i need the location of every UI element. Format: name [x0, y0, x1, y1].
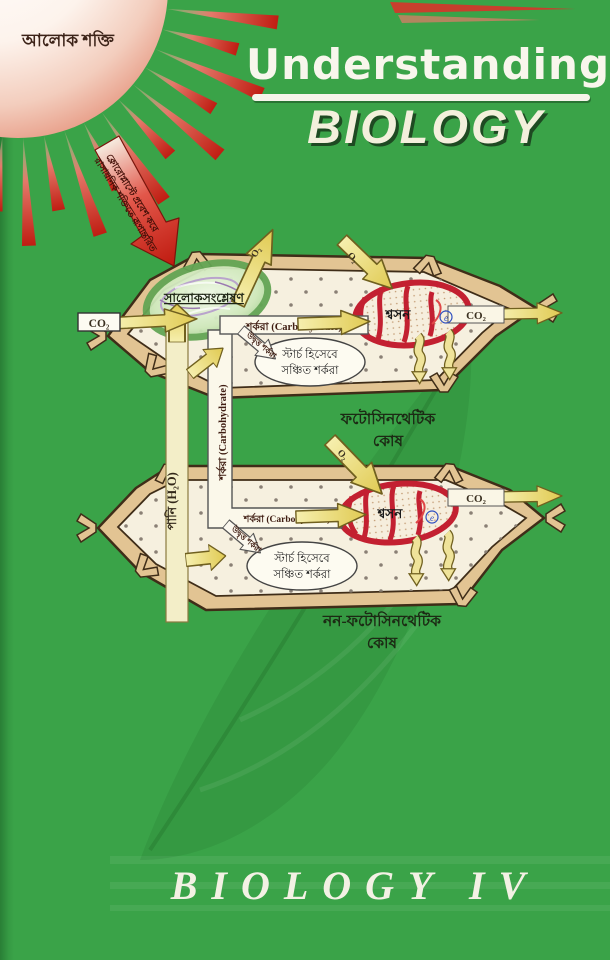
co2-in-label: CO₂ [89, 318, 110, 330]
co2-out-label-2: CO₂ [466, 493, 487, 505]
photosynthetic-cell-caption: ফটোসিনথেটিক [340, 408, 437, 428]
non-photosynthetic-cell-caption: কোষ [367, 635, 399, 652]
starch-label: সঞ্চিত শর্করা [273, 567, 332, 581]
co2-out-label-1: CO₂ [466, 310, 487, 322]
starch-store-2: স্টার্চ হিসেবে সঞ্চিত শর্করা [247, 542, 357, 590]
carbohydrate-channel-label: শর্করা (Carbohydrate) [215, 384, 229, 481]
starch-label: সঞ্চিত শর্করা [281, 363, 340, 377]
electron-label-1: e [444, 313, 448, 323]
photosynthetic-cell-caption: কোষ [373, 433, 405, 450]
starch-label: স্টার্চ হিসেবে [273, 551, 330, 565]
title-understanding: Understanding [246, 40, 596, 89]
water-channel: পানি (H₂O) [161, 304, 193, 622]
light-energy-label: আলোক শক্তি [22, 28, 114, 56]
starch-store-1: স্টার্চ হিসেবে সঞ্চিত শর্করা [255, 338, 365, 386]
starch-label: স্টার্চ হিসেবে [281, 347, 338, 361]
non-photosynthetic-cell-caption: নন-ফটোসিনথেটিক [322, 610, 442, 630]
sun-disc [0, 0, 168, 138]
mitochondrion-1-label: শ্বসন [385, 307, 412, 322]
chloroplast-label: সালোকসংশ্লেষণ [163, 291, 245, 305]
water-channel-label: পানি (H₂O) [163, 472, 179, 530]
mitochondrion-2-label: শ্বসন [377, 506, 404, 521]
series-title: BIOLOGY IV [120, 862, 590, 909]
title-biology: BIOLOGY [256, 99, 596, 154]
electron-label-2: e [430, 513, 434, 523]
